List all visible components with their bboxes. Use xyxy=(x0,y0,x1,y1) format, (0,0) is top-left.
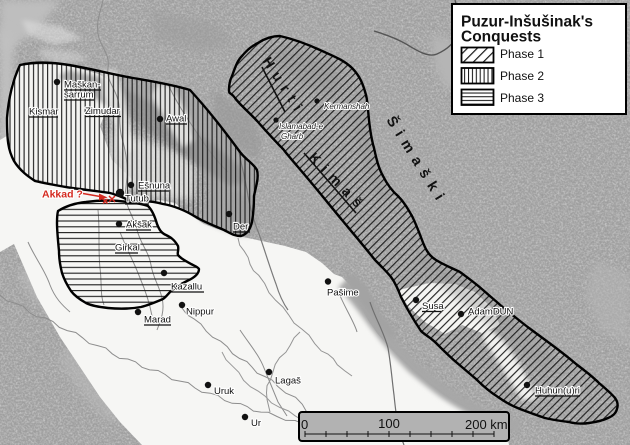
svg-text:Tutub: Tutub xyxy=(125,194,149,205)
svg-text:Akkad ?: Akkad ? xyxy=(42,189,83,201)
svg-text:Gharb: Gharb xyxy=(281,132,304,141)
svg-text:šarrum: šarrum xyxy=(64,90,94,101)
svg-text:Huhun(u)ri: Huhun(u)ri xyxy=(535,386,580,397)
svg-text:Kermanshah: Kermanshah xyxy=(324,102,370,111)
svg-text:Pašime: Pašime xyxy=(327,288,359,299)
svg-text:AdamDUN: AdamDUN xyxy=(468,307,514,318)
svg-text:Nippur: Nippur xyxy=(186,307,214,318)
svg-text:Akšak: Akšak xyxy=(126,220,152,231)
svg-text:Girkal: Girkal xyxy=(115,243,140,254)
svg-text:Susa: Susa xyxy=(422,301,444,312)
svg-text:Islamabad-e: Islamabad-e xyxy=(279,122,324,131)
svg-text:Marad: Marad xyxy=(144,315,171,326)
svg-text:200 km: 200 km xyxy=(465,417,508,432)
svg-text:Ur: Ur xyxy=(251,418,261,429)
svg-text:Der: Der xyxy=(233,222,248,233)
svg-text:0: 0 xyxy=(301,417,308,432)
svg-text:Lagaš: Lagaš xyxy=(275,376,301,387)
svg-text:Kismar: Kismar xyxy=(29,107,59,118)
svg-text:Phase 3: Phase 3 xyxy=(500,91,544,105)
svg-text:Awal: Awal xyxy=(166,114,186,125)
svg-text:Ešnuna: Ešnuna xyxy=(138,181,171,192)
svg-text:Phase 2: Phase 2 xyxy=(500,69,544,83)
svg-text:Uruk: Uruk xyxy=(214,386,234,397)
svg-text:100: 100 xyxy=(378,416,400,431)
svg-text:Phase 1: Phase 1 xyxy=(500,47,544,61)
svg-text:Zimudar: Zimudar xyxy=(85,106,120,117)
svg-text:Conquests: Conquests xyxy=(461,29,541,46)
svg-text:Kazallu: Kazallu xyxy=(171,282,202,293)
